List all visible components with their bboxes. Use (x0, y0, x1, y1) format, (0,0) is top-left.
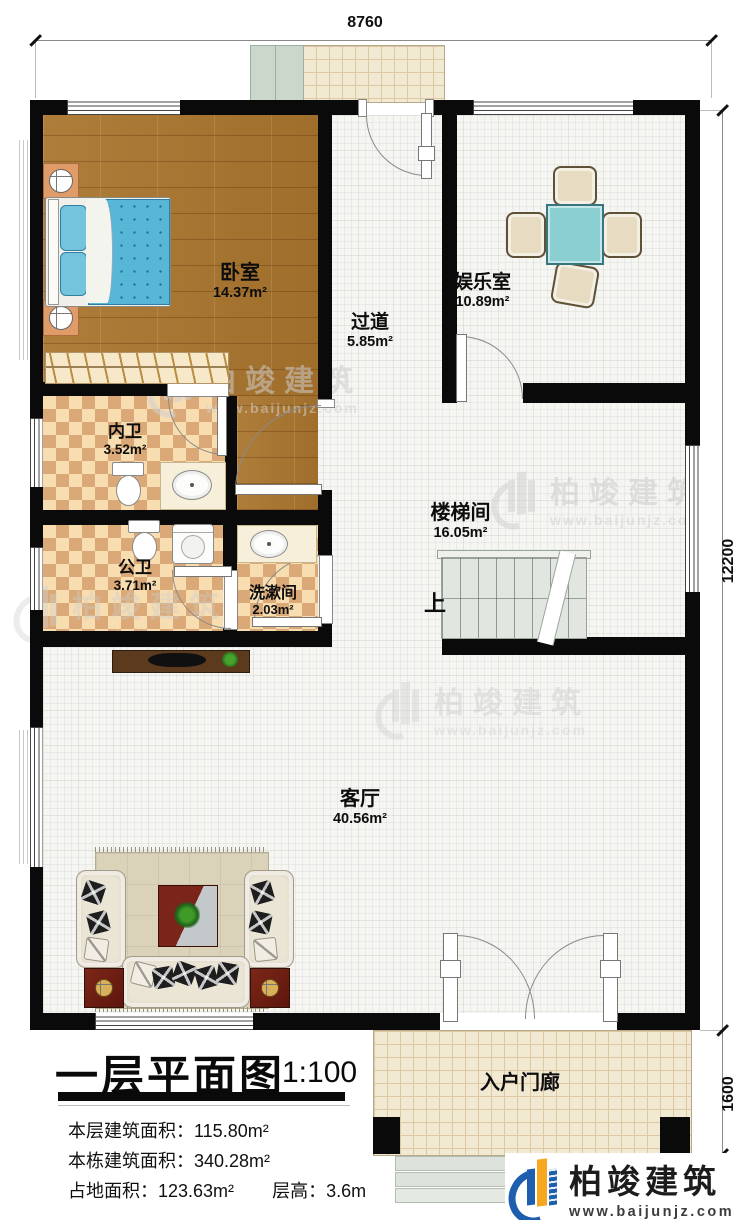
game-table (546, 204, 604, 265)
wall-segment (30, 382, 168, 396)
bed-headboard (48, 199, 59, 305)
wall-segment (30, 100, 43, 418)
room-label-inner-bath: 内卫 3.52m² (85, 422, 165, 457)
wall-segment (253, 1013, 440, 1030)
exterior-sill-lines (19, 140, 28, 360)
window (30, 727, 43, 869)
chair (602, 212, 642, 258)
door-handle (440, 960, 461, 978)
porch-pillar (660, 1117, 690, 1154)
plant-icon (222, 652, 238, 667)
brand-logo-icon (509, 1159, 561, 1217)
wall-segment (442, 100, 457, 383)
wall-segment (30, 510, 332, 525)
stairs-up-label: 上 (424, 586, 446, 618)
room-label-bedroom: 卧室 14.37m² (185, 262, 295, 302)
room-label-public-bath: 公卫 3.71m² (95, 558, 175, 593)
window (30, 547, 43, 612)
door-handle (600, 960, 621, 978)
wall-segment (30, 631, 332, 647)
balcony-panel-divider (275, 45, 276, 101)
tv-icon (148, 653, 206, 667)
room-label-washroom: 洗漱间 2.03m² (218, 585, 328, 618)
wall-segment (180, 100, 360, 115)
pillow (215, 961, 239, 985)
brand-logo: 柏竣建筑 www.baijunjz.com (505, 1153, 738, 1220)
wall-segment (523, 383, 685, 403)
bed-sheet-fold (86, 199, 113, 303)
dimension-right-lower-value: 1600 (720, 1064, 738, 1124)
lamp-icon (49, 306, 73, 330)
window (473, 100, 635, 115)
door-leaf (174, 566, 232, 577)
chair (506, 212, 546, 258)
title-line-3: 占地面积：123.63m² 层高：3.6m (68, 1177, 366, 1203)
door-handle (418, 146, 435, 161)
wall-segment (442, 383, 457, 403)
door-leaf (456, 334, 467, 402)
balcony-panel (250, 45, 304, 103)
wardrobe (45, 352, 229, 384)
dimension-top-value: 8760 (330, 14, 400, 32)
pillow-blue (60, 205, 87, 251)
wall-segment (617, 1013, 700, 1030)
wall-segment (30, 867, 43, 1030)
sink (172, 470, 212, 500)
wall-segment (685, 100, 700, 445)
door-leaf (252, 617, 322, 627)
room-label-entertainment: 娱乐室 10.89m² (425, 272, 540, 311)
dimension-extension (35, 40, 36, 98)
wall-segment (442, 637, 685, 655)
lamp-icon (261, 979, 279, 997)
window (95, 1013, 255, 1030)
rug-fringe (95, 847, 267, 852)
toilet (112, 462, 144, 476)
brand-name: 柏竣建筑 (569, 1163, 721, 1200)
door-jamb (167, 383, 229, 397)
floor-plan: 柏竣建筑 www.baijunjz.com 柏竣建筑 www.baijunjz.… (0, 0, 750, 1220)
room-label-corridor: 过道 5.85m² (330, 312, 410, 351)
door-leaf (235, 484, 322, 495)
pillow (248, 910, 273, 935)
washing-machine-drum (181, 535, 205, 559)
title-line-2: 本栋建筑面积：340.28m² (68, 1147, 270, 1173)
exterior-sill-lines (19, 730, 28, 864)
title-rule-thick (58, 1092, 345, 1101)
door-leaf (217, 396, 227, 456)
window (685, 445, 700, 594)
wall-segment (318, 100, 332, 405)
brand-url: www.baijunjz.com (569, 1204, 734, 1220)
toilet (116, 475, 141, 506)
dimension-right-upper-value: 12200 (720, 531, 738, 591)
dimension-line-right (722, 110, 723, 1155)
room-label-stairwell: 楼梯间 16.05m² (408, 502, 513, 542)
window (30, 418, 43, 489)
porch-pillar (373, 1117, 400, 1154)
room-label-living: 客厅 40.56m² (305, 788, 415, 828)
dimension-line-top (35, 40, 712, 41)
pillow-blue (60, 252, 87, 296)
lamp-icon (49, 169, 73, 193)
wall-segment (223, 525, 237, 570)
pillow (253, 937, 278, 962)
lamp-icon (95, 979, 113, 997)
wall-segment (685, 592, 700, 1030)
chair (550, 260, 601, 309)
wall-segment (30, 610, 43, 727)
title-rule-thin (58, 1105, 350, 1106)
wall-segment (30, 1013, 95, 1030)
plan-scale: 1:100 (282, 1056, 357, 1090)
chair (553, 166, 597, 206)
room-label-porch: 入户门廊 (445, 1072, 595, 1095)
plant-icon (174, 902, 200, 928)
dimension-extension (711, 40, 712, 98)
wall-segment (318, 525, 332, 555)
title-line-1: 本层建筑面积：115.80m² (68, 1117, 269, 1143)
pillow (84, 937, 110, 963)
sink (250, 530, 288, 558)
window (67, 100, 182, 115)
